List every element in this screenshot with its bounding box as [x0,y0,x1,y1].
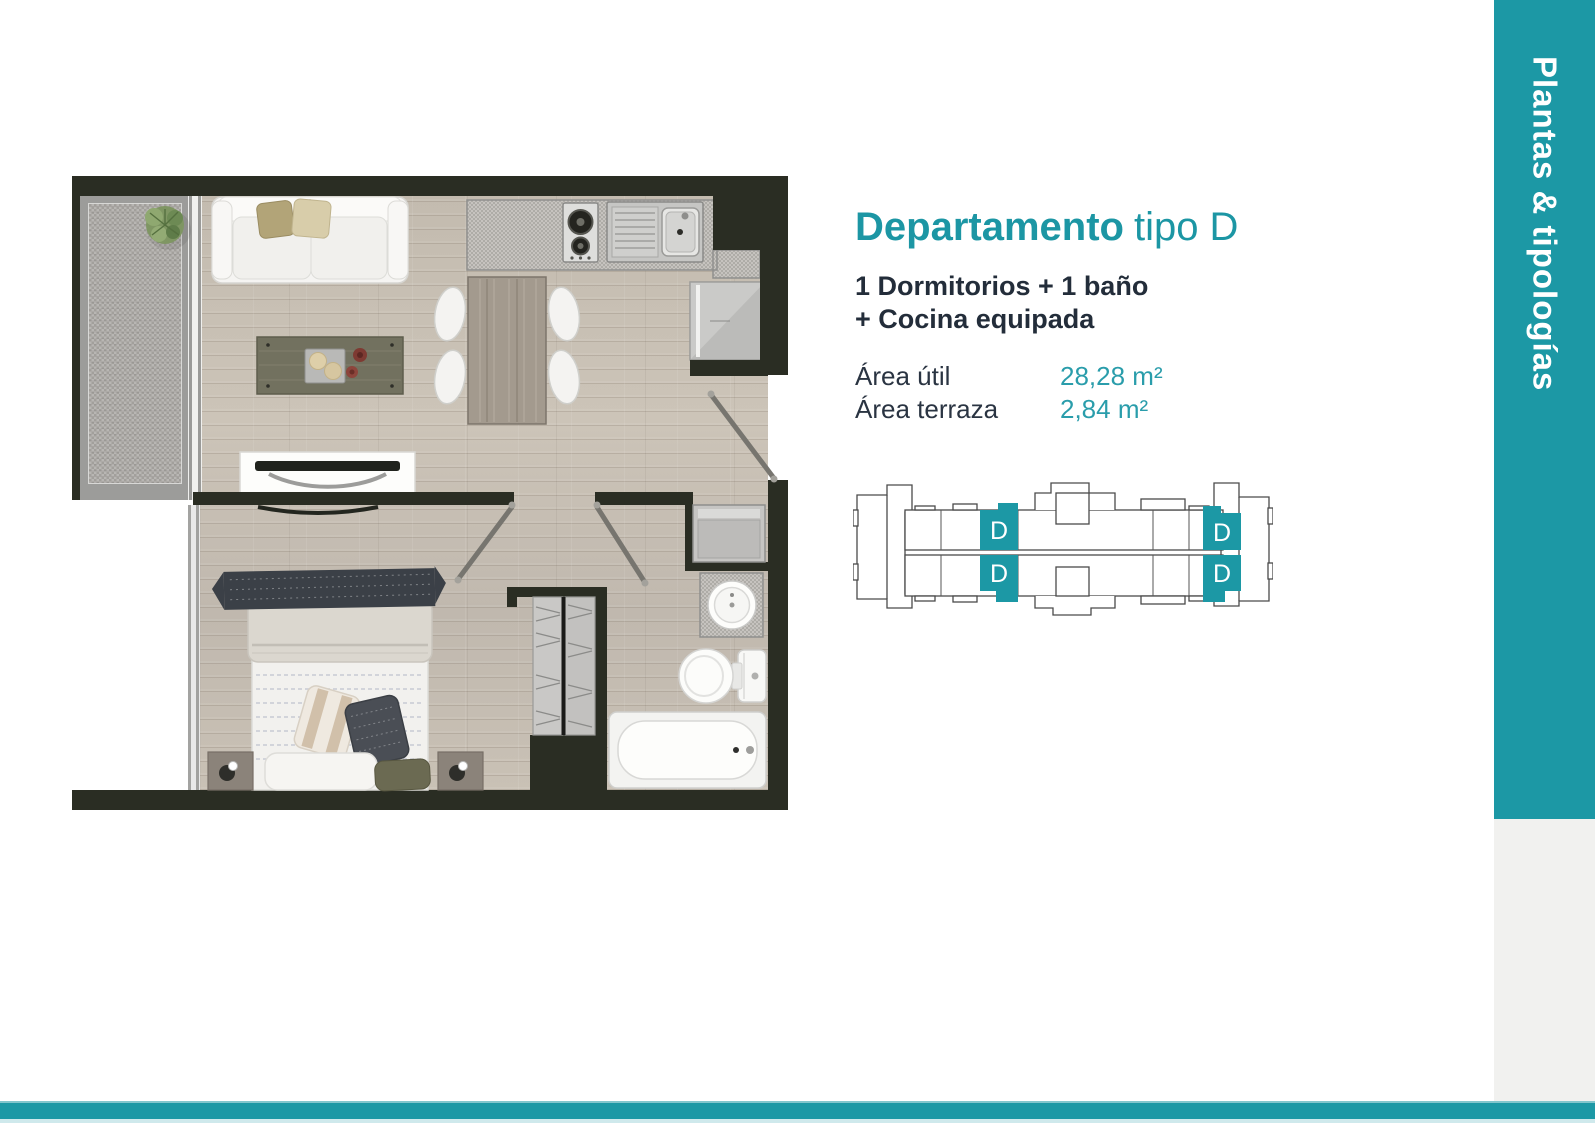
nightstand-icon [208,752,253,790]
shower-box-icon [693,505,765,562]
area-value: 2,84 m² [1060,394,1148,425]
building-key-plan: D D D D [853,468,1273,623]
area-table: Área útil 28,28 m² Área terraza 2,84 m² [855,360,1163,426]
floor-plan [72,175,788,810]
fridge-icon [690,282,765,360]
area-row: Área útil 28,28 m² [855,360,1163,393]
unit-d-label: D [1213,560,1231,588]
area-value: 28,28 m² [1060,361,1163,392]
plant-icon [145,206,191,250]
basin-icon [700,573,763,637]
keyplan-center-bottom [1035,596,1115,615]
title-light: tipo D [1134,205,1239,249]
entry-door [712,396,773,477]
bathtub-icon [609,712,766,788]
toilet-icon [679,649,766,703]
cooktop-icon [563,203,598,262]
coffee-table-icon [257,337,403,394]
bed-throw [212,566,447,610]
subtitle-line-1: 1 Dormitorios + 1 baño [855,270,1148,303]
unit-d-label: D [990,560,1008,588]
closet-icon [533,597,595,735]
side-tab-footer-block [1494,819,1595,1101]
apartment-subtitle: 1 Dormitorios + 1 baño + Cocina equipada [855,270,1148,336]
bathroom-door [597,507,644,581]
sofa-pillows [256,198,331,238]
keyplan-left-wing [857,485,912,608]
unit-d-label: D [990,517,1008,545]
footer-accent-bar-pale [0,1119,1595,1123]
tv-shadow [258,507,378,513]
page-title: Departamentotipo D [855,205,1238,250]
section-tab-label: Plantas & tipologías [1526,56,1564,391]
floor-plan-overlay [72,175,788,810]
area-row: Área terraza 2,84 m² [855,393,1163,426]
footer-accent-bar [0,1101,1595,1119]
area-label: Área terraza [855,394,1060,425]
unit-d-label: D [1213,519,1231,547]
title-bold: Departamento [855,205,1124,249]
section-tab: Plantas & tipologías [1494,0,1595,819]
area-label: Área útil [855,361,1060,392]
sofa-icon [212,197,408,283]
brochure-page: Departamentotipo D 1 Dormitorios + 1 bañ… [0,0,1595,1123]
nightstand-icon [438,752,483,790]
bedroom-door [459,507,512,578]
subtitle-line-2: + Cocina equipada [855,303,1148,336]
sink-icon [607,202,703,262]
dining-set [431,277,583,424]
